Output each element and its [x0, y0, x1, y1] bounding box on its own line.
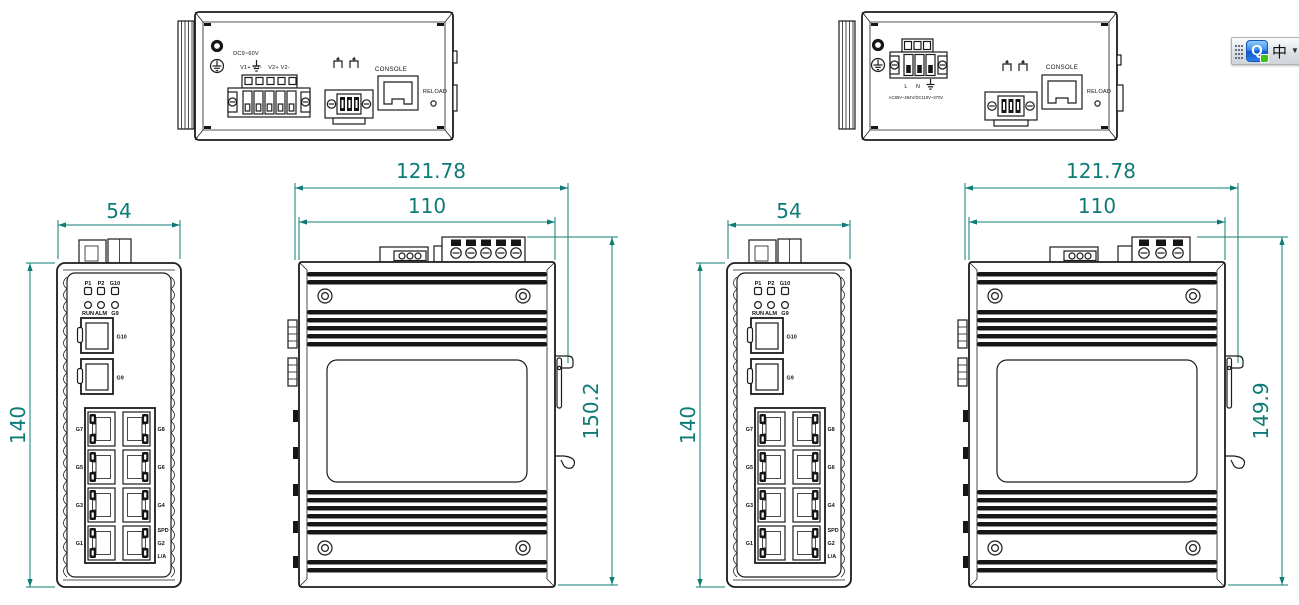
dimension-value: 54	[106, 199, 131, 223]
led-label: RUN	[752, 311, 764, 317]
dimension-value: 110	[1078, 194, 1116, 218]
sfp-label: G10	[787, 335, 797, 341]
chevron-down-icon[interactable]: ▼	[1291, 47, 1299, 55]
left-connector-profiles	[958, 320, 968, 568]
dimension-drawing-page: DC9~60V V1+ V1- V2+ V2-	[0, 0, 1299, 605]
side-tab	[453, 51, 457, 63]
top-clip	[749, 239, 801, 263]
din-clip-profile	[178, 21, 194, 129]
power-rating-label: AC85V~264V/DC110V~370V	[889, 95, 944, 100]
port-label-la: L/A	[158, 554, 167, 560]
led-label: P1	[85, 281, 92, 287]
led-label: G9	[111, 311, 118, 317]
led-label: RUN	[82, 311, 94, 317]
side-view-drawing: 121.78 110 150.2	[268, 160, 638, 605]
dimension-value: 150.2	[579, 382, 603, 439]
side-tab	[1117, 85, 1123, 111]
power-terminal-3pin	[1118, 237, 1190, 262]
led-label: G10	[780, 281, 791, 287]
port-label-spd: SPD	[828, 528, 839, 534]
ime-language-button[interactable]: 中	[1271, 41, 1288, 62]
port-label: G1	[76, 541, 83, 547]
reload-label: RELOAD	[423, 89, 447, 95]
led-label: ALM	[95, 311, 107, 317]
dimension-value: 121.78	[1066, 159, 1136, 183]
port-label-spd: SPD	[158, 528, 169, 534]
sfp-label: G9	[117, 376, 124, 382]
power-rating-label: DC9~60V	[233, 51, 259, 57]
side-tab	[453, 85, 457, 111]
dimension-value: 140	[6, 406, 30, 444]
led-label: G10	[110, 281, 121, 287]
dimension-value: 54	[776, 199, 801, 223]
drag-handle-icon[interactable]	[1235, 44, 1243, 58]
port-label: G6	[158, 465, 165, 471]
ime-toolbar[interactable]: Q 中 ▼	[1231, 37, 1299, 65]
port-block: G7 G5 G3 G1 G8 G6 G4 SPD G2 L/A	[746, 408, 839, 563]
dimension-value: 110	[408, 194, 446, 218]
port-label: G7	[76, 427, 83, 433]
top-view-dc-drawing: DC9~60V V1+ V1- V2+ V2-	[160, 5, 460, 145]
port-label: G8	[158, 427, 165, 433]
din-rail-clip	[1225, 356, 1245, 468]
led-label: ALM	[765, 311, 777, 317]
port-label: G5	[746, 465, 753, 471]
port-label: G3	[76, 503, 83, 509]
console-label: CONSOLE	[375, 66, 407, 73]
ime-logo-button[interactable]: Q	[1246, 40, 1268, 62]
relay-connector-top	[1050, 247, 1098, 262]
led-label: P2	[768, 281, 775, 287]
console-port	[378, 76, 418, 110]
device-body	[299, 262, 555, 587]
sfp-label: G9	[787, 376, 794, 382]
reload-label: RELOAD	[1087, 89, 1111, 95]
sfp-label: G10	[117, 335, 127, 341]
port-label: G1	[746, 541, 753, 547]
console-port	[1042, 75, 1082, 109]
port-label: G2	[828, 541, 835, 547]
top-clip	[79, 239, 131, 263]
port-block: G7 G5 G3 G1 G8 G6 G4 SPD G2 L/A	[76, 408, 169, 563]
port-label: G3	[746, 503, 753, 509]
side-tab	[1117, 55, 1121, 65]
led-label: P2	[98, 281, 105, 287]
console-label: CONSOLE	[1046, 64, 1078, 71]
din-rail-clip	[555, 356, 575, 468]
line-terminal-label: L	[904, 84, 907, 90]
port-label: G4	[828, 503, 835, 509]
din-clip-profile	[839, 21, 855, 129]
ime-status-dot	[1260, 54, 1269, 63]
device-body	[969, 262, 1225, 587]
terminal-label: V2+ V2-	[268, 65, 290, 71]
top-view-ac-drawing: L N AC85V~264V/DC110V~370V CONSOLE RELOA…	[835, 5, 1135, 145]
neutral-terminal-label: N	[916, 84, 920, 90]
relay-connector-top	[380, 247, 428, 262]
height-dimension: 140	[676, 263, 725, 587]
front-view-drawing: 54 140 P1 P2 G10 RUN ALM G9	[687, 195, 862, 605]
port-label: G6	[828, 465, 835, 471]
port-label: G2	[158, 541, 165, 547]
left-connector-profiles	[288, 320, 298, 568]
port-label: G5	[76, 465, 83, 471]
led-label: G9	[781, 311, 788, 317]
front-view-drawing: 54 140 P1 P2 G10 RUN ALM G9	[17, 195, 192, 605]
dimension-value: 149.9	[1249, 382, 1273, 439]
port-label: G4	[158, 503, 165, 509]
led-label: P1	[755, 281, 762, 287]
port-label: G7	[746, 427, 753, 433]
port-label-la: L/A	[828, 554, 837, 560]
power-terminal-5pin	[434, 237, 525, 262]
port-label: G8	[828, 427, 835, 433]
dimension-value: 140	[676, 406, 700, 444]
side-view-drawing: 121.78 110 149.9	[938, 160, 1299, 605]
dimension-value: 121.78	[396, 159, 466, 183]
height-dimension: 140	[6, 263, 55, 587]
